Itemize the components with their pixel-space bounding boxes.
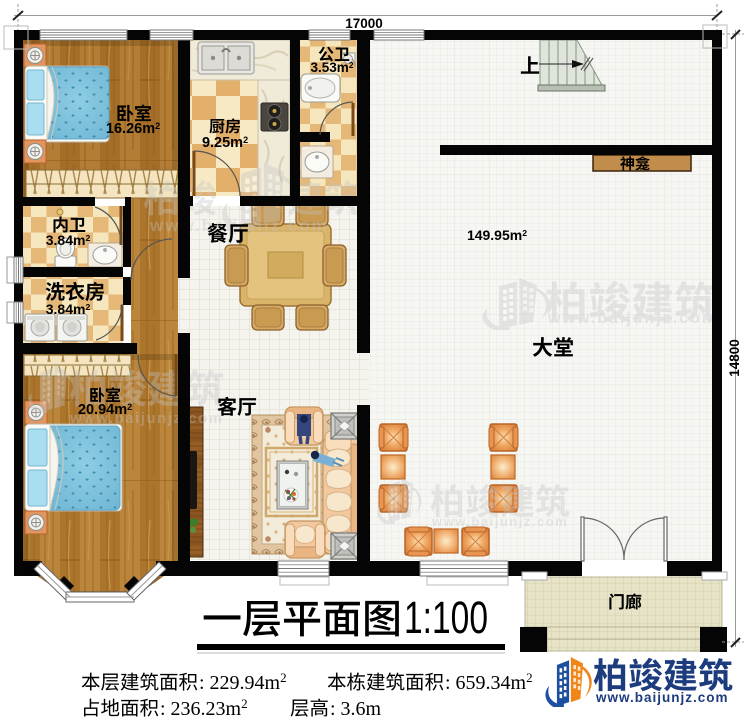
svg-text:: 229.94m2: : 229.94m2 [199, 670, 287, 694]
svg-text:3.53m2: 3.53m2 [311, 60, 354, 75]
svg-text:20.94m2: 20.94m2 [78, 402, 132, 418]
svg-text:1:100: 1:100 [404, 592, 488, 643]
svg-text:3.84m2: 3.84m2 [46, 232, 91, 248]
svg-text:: 659.34m2: : 659.34m2 [445, 670, 533, 694]
svg-text:www.baijunjz.com: www.baijunjz.com [595, 690, 729, 705]
svg-text:9.25m2: 9.25m2 [202, 135, 248, 151]
svg-text:: 236.23m2: : 236.23m2 [160, 696, 248, 720]
svg-text:www.baijunjz.com: www.baijunjz.com [547, 310, 718, 327]
svg-text:3.84m2: 3.84m2 [46, 301, 91, 317]
svg-text:www.baijunjz.com: www.baijunjz.com [431, 514, 568, 529]
svg-text:17000: 17000 [345, 16, 383, 31]
svg-text:16.26m2: 16.26m2 [106, 121, 160, 137]
svg-text:: 3.6m: : 3.6m [330, 698, 382, 720]
svg-text:14800: 14800 [727, 339, 742, 377]
svg-text:149.95m2: 149.95m2 [467, 227, 527, 243]
